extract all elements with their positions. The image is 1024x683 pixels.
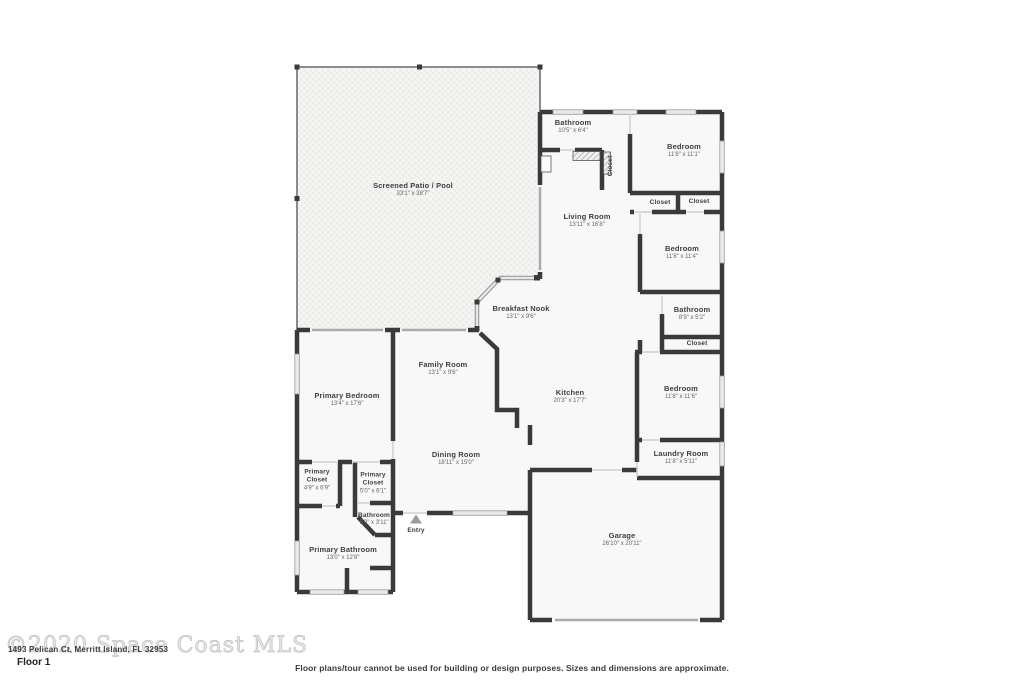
room-label-primary-closet-1: Primary Closet 4'9" x 6'9" (295, 469, 339, 494)
room-label-kitchen: Kitchen 20'3" x 17'7" (554, 388, 587, 406)
screen-post (538, 65, 543, 70)
room-label-closet-a: Closet (650, 199, 671, 207)
screen-post (295, 65, 300, 70)
room-label-bathroom-mid: Bathroom 8'9" x 5'2" (674, 305, 711, 323)
toilet (541, 156, 551, 172)
room-label-dining-room: Dining Room 18'11" x 15'0" (432, 450, 480, 468)
vanity-hatch (573, 152, 600, 161)
disclaimer-text: Floor plans/tour cannot be used for buil… (0, 663, 1024, 673)
room-label-bedroom-1: Bedroom 11'8" x 11'1" (667, 142, 701, 160)
room-label-entry: Entry (407, 527, 424, 535)
room-label-breakfast-nook: Breakfast Nook 13'1" x 9'6" (492, 304, 549, 322)
room-label-closet-vertical: Closet (607, 156, 615, 177)
room-label-garage: Garage 26'10" x 20'11" (602, 531, 641, 549)
entry-arrow-icon (410, 515, 422, 524)
property-address: 1493 Pelican Ct, Merritt Island, FL 3295… (8, 645, 168, 654)
room-label-bathroom-small: Bathroom 5'0" x 3'11" (358, 512, 390, 528)
floorplan-drawing (0, 0, 1024, 683)
room-label-closet-b: Closet (689, 198, 710, 206)
room-label-bedroom-3: Bedroom 11'8" x 11'6" (664, 384, 698, 402)
room-label-primary-closet-2: Primary Closet 5'0" x 6'1" (351, 472, 395, 497)
screen-post (417, 65, 422, 70)
room-label-primary-bathroom: Primary Bathroom 13'0" x 12'8" (309, 545, 377, 563)
room-label-closet-mid: Closet (687, 340, 708, 348)
room-label-screened-patio: Screened Patio / Pool 33'1" x 38'7" (373, 181, 453, 199)
room-label-family-room: Family Room 13'1" x 9'6" (419, 360, 468, 378)
room-label-laundry-room: Laundry Room 11'8" x 5'11" (654, 449, 709, 467)
floorplan-page: Screened Patio / Pool 33'1" x 38'7" Bath… (0, 0, 1024, 683)
screen-post (295, 196, 300, 201)
room-label-living-room: Living Room 13'11" x 16'8" (563, 212, 610, 230)
room-label-primary-bedroom: Primary Bedroom 13'4" x 17'6" (314, 391, 379, 409)
room-label-bathroom-top: Bathroom 10'5" x 6'4" (555, 118, 592, 136)
room-label-bedroom-2: Bedroom 11'8" x 11'4" (665, 244, 699, 262)
